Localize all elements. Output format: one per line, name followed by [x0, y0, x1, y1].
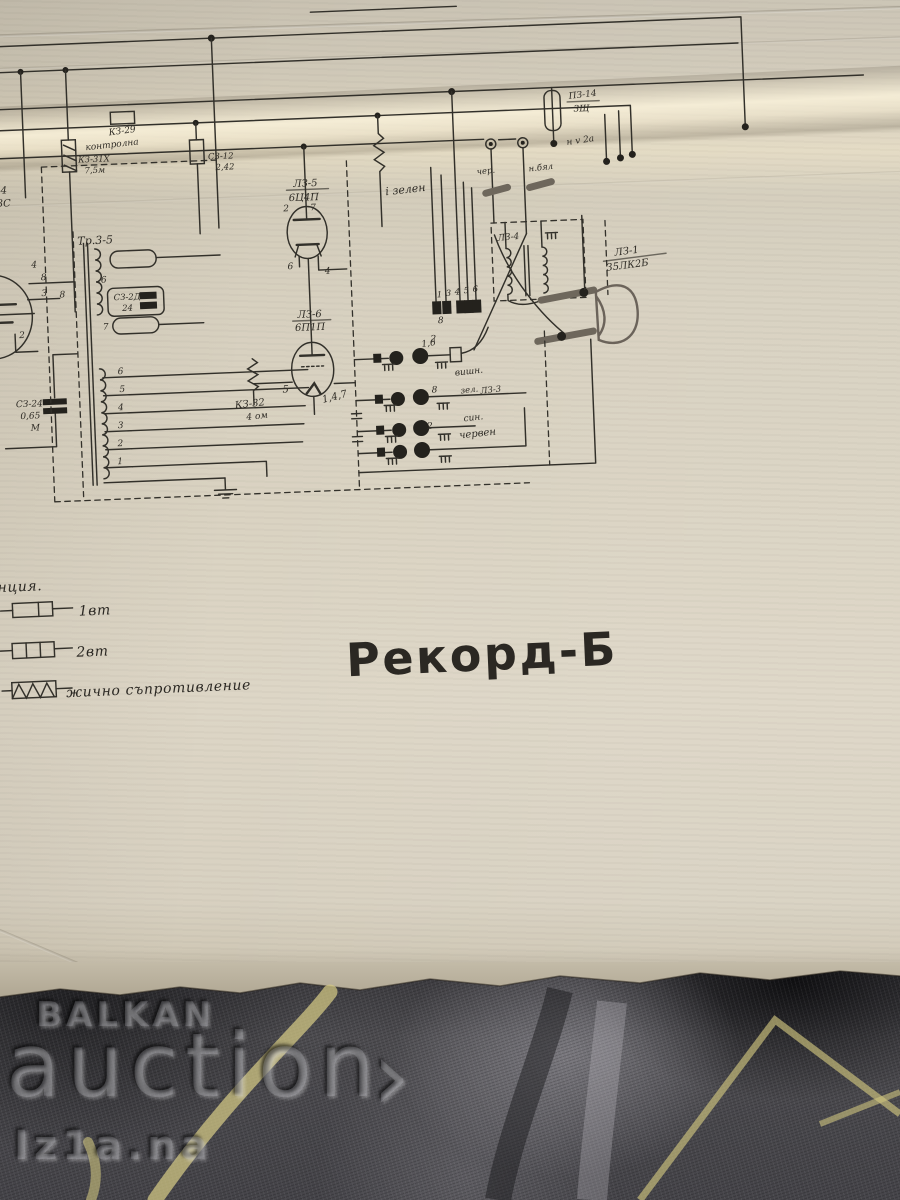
label-fuse-3: н v 2а	[566, 134, 595, 148]
label-r31-2: 7,5м	[84, 166, 105, 177]
watermark-arrow-icon: ›	[372, 1028, 410, 1124]
label-t1p6: 6	[287, 262, 293, 272]
label-row2-color: син.	[463, 412, 484, 424]
legend-item-wirewound-resistor: жично съпротивление	[2, 672, 252, 704]
label-lt3: 3	[41, 289, 47, 299]
label-t1p4: 4	[324, 267, 331, 277]
label-row3-num: 2	[426, 422, 433, 432]
label-cursive-top: контролна	[85, 137, 139, 153]
schematic-drawing: Тр.3-5 -4 3С контролна КЗ-29 КЗ-31Х 7,5м…	[0, 0, 900, 1010]
page-title: Рекорд-Б	[345, 621, 619, 687]
label-row1-num: 1,6	[421, 338, 437, 350]
label-lt2: 2	[18, 331, 25, 341]
legend-partial-word: нция.	[0, 578, 43, 596]
label-c24-1: СЗ-24	[16, 399, 44, 410]
label-tp6: 6	[101, 276, 107, 286]
photo-of-schematic: Тр.3-5 -4 3С контролна КЗ-29 КЗ-31Х 7,5м…	[0, 0, 900, 1200]
circuit: Тр.3-5 -4 3С контролна КЗ-29 КЗ-31Х 7,5м…	[0, 0, 879, 509]
power-transformer	[73, 223, 313, 504]
label-row3-color: червен	[459, 427, 497, 442]
label-row1-color: вишн.	[454, 366, 483, 379]
label-lt4: 4	[30, 260, 37, 270]
label-tap5: 5	[119, 385, 125, 395]
legend-item-resistor-1w: 1вт	[0, 599, 111, 623]
label-lt8: 8	[41, 273, 47, 283]
label-tap2: 2	[116, 439, 123, 449]
label-c24-2: 0,65	[20, 411, 41, 422]
label-fuse-1: ПЗ-14	[567, 89, 597, 102]
label-tap6: 6	[117, 367, 123, 377]
watermark-brand-main: auction	[6, 1022, 382, 1110]
label-s12-1: СЗ-12	[208, 151, 234, 162]
label-sock-n2: 3	[446, 289, 452, 299]
label-sock-8: 8	[438, 316, 444, 326]
label-r32-2: 4 ом	[245, 411, 268, 423]
watermark-sub: Iz1a.na	[14, 1126, 213, 1166]
legend-item-label: 1вт	[78, 602, 111, 619]
label-r31-1: КЗ-31Х	[77, 154, 111, 165]
label-row2-tag1: зел.	[460, 385, 479, 397]
legend-item-resistor-2w: 2вт	[0, 639, 109, 664]
schematic-labels: Тр.3-5 -4 3С контролна КЗ-29 КЗ-31Х 7,5м…	[0, 86, 675, 471]
loudspeaker	[349, 213, 644, 472]
label-wire-green: і зелен	[385, 181, 426, 198]
label-tp8: 8	[59, 290, 65, 300]
connector-rows	[353, 326, 528, 466]
legend: нция. 1вт 2вт жично съпротивление	[0, 569, 251, 704]
label-wire-white: н.бял	[528, 161, 554, 175]
label-cap-int-2: 24	[121, 304, 133, 314]
label-c24-3: М	[30, 423, 41, 433]
left-edge-tube	[0, 272, 77, 361]
label-row2-num: 8	[431, 385, 437, 395]
label-sock-n5: 6	[472, 285, 478, 295]
label-left-tube-2: 3С	[0, 198, 11, 210]
label-transformer: Тр.3-5	[77, 233, 113, 247]
label-tap1: 1	[117, 457, 123, 467]
label-tp7: 7	[103, 323, 109, 333]
label-tube2-name: ЛЗ-6	[296, 309, 322, 321]
bus-wires	[0, 0, 866, 183]
label-sock-n1: 1	[437, 290, 443, 300]
label-tube2-type: 6П1П	[295, 322, 326, 334]
label-tap4: 4	[117, 403, 124, 413]
label-wire-black: чер.	[476, 166, 495, 178]
label-r32-1: КЗ-32	[233, 397, 265, 411]
label-sock-n3: 4	[454, 287, 461, 297]
label-tube1-name: ЛЗ-5	[292, 178, 318, 190]
label-t1p2: 2	[282, 204, 289, 214]
label-s12-2: 2,42	[214, 162, 234, 173]
label-fuse-2: 3Щ	[573, 104, 590, 115]
label-cap-int-1: СЗ-2Д	[113, 292, 141, 303]
label-left-tube-1: -4	[0, 185, 7, 196]
label-sock-n4: 5	[463, 286, 469, 296]
label-t1p7: 7	[310, 203, 316, 213]
label-row2-tag2: ЛЗ-3	[479, 384, 502, 396]
legend-item-label: жично съпротивление	[66, 677, 251, 701]
label-tap3: 3	[118, 421, 124, 431]
label-tube2-pin5: 5	[282, 384, 289, 395]
legend-item-label: 2вт	[75, 643, 109, 660]
label-out-tr: ЛЗ-4	[496, 232, 520, 244]
crossed-speaker-wires	[469, 232, 567, 350]
